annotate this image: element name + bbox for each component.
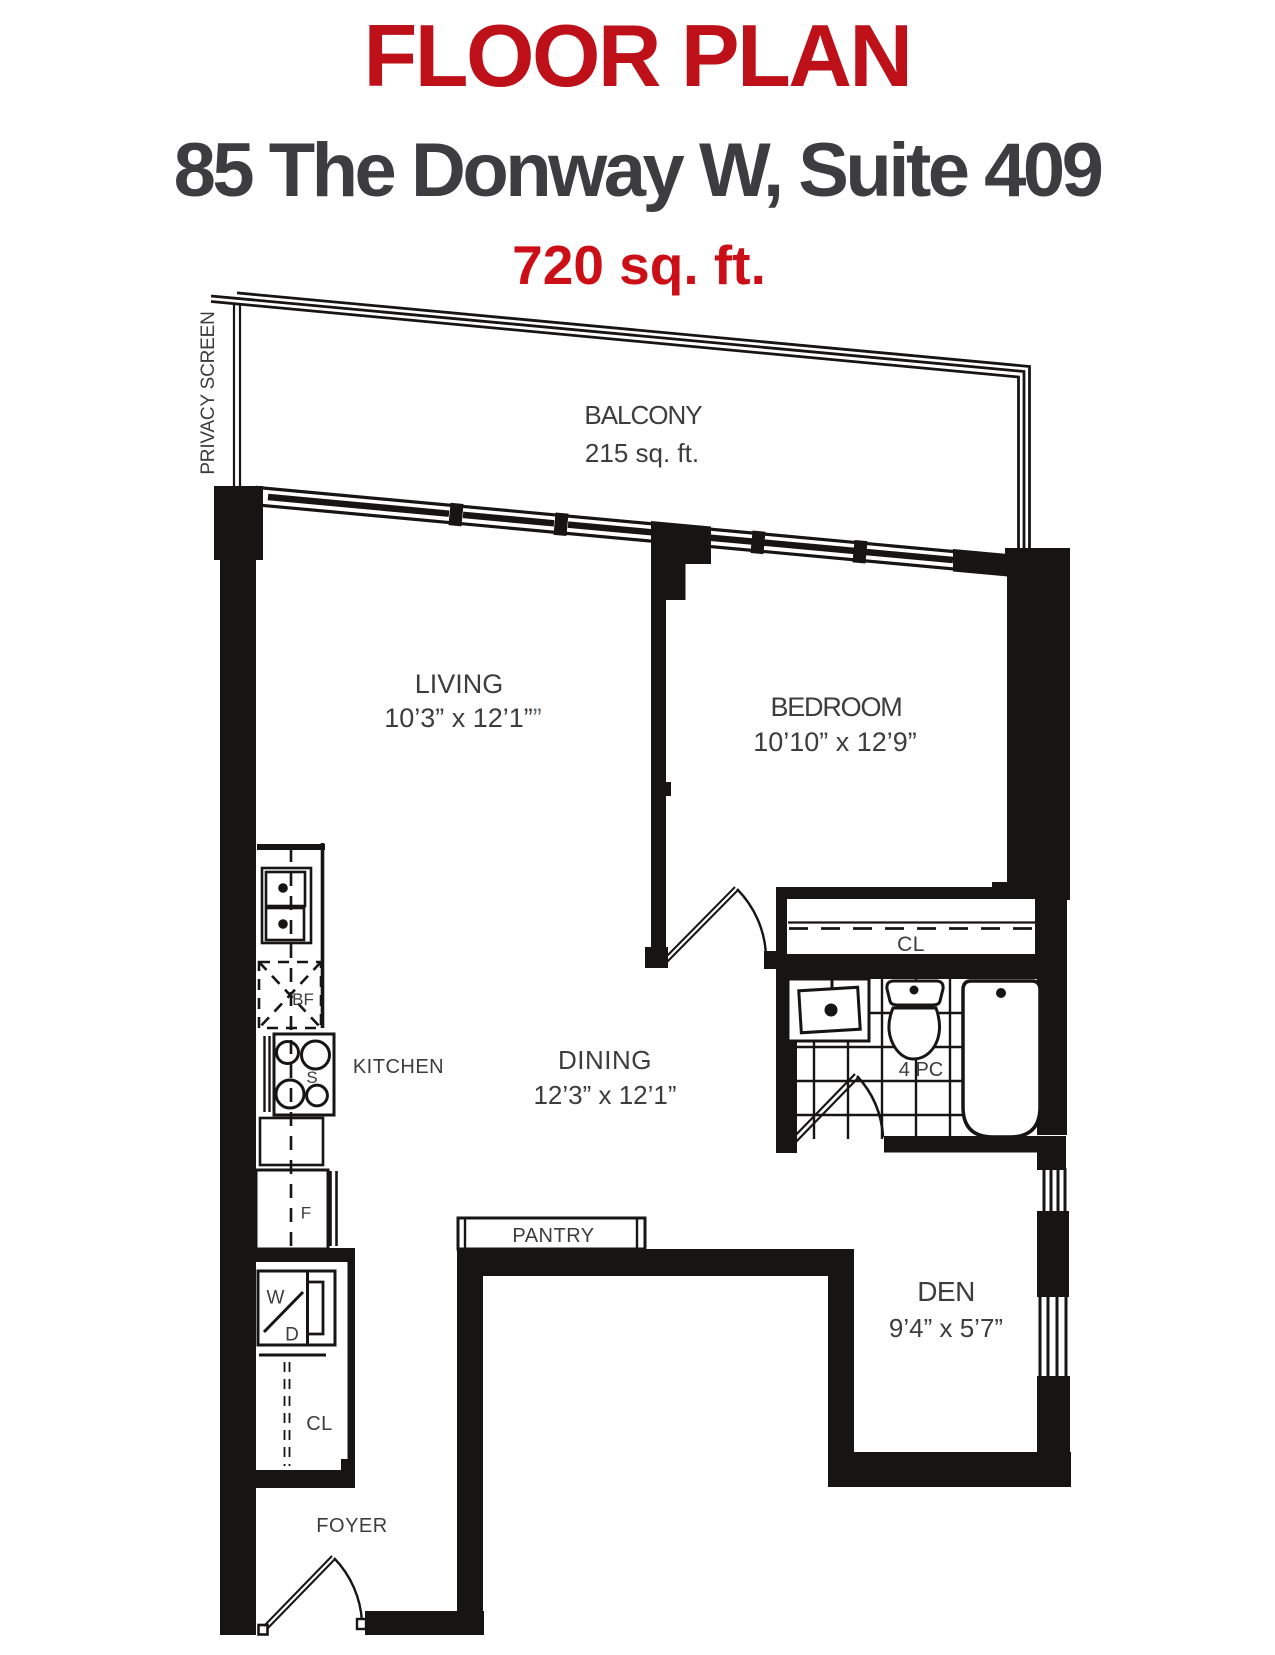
svg-text:LIVING: LIVING <box>415 669 504 699</box>
svg-text:FOYER: FOYER <box>316 1515 387 1537</box>
svg-text:BALCONY: BALCONY <box>584 400 702 430</box>
svg-text:W: W <box>267 1288 285 1309</box>
svg-text:BEDROOM: BEDROOM <box>770 692 901 722</box>
svg-text:D: D <box>285 1325 299 1346</box>
svg-text:F: F <box>301 1204 311 1223</box>
svg-text:CL: CL <box>306 1413 333 1435</box>
svg-text:720 sq. ft.: 720 sq. ft. <box>512 234 766 296</box>
svg-text:BF: BF <box>292 990 314 1009</box>
svg-text:215 sq. ft.: 215 sq. ft. <box>585 438 699 468</box>
svg-text:10’3” x 12’1””: 10’3” x 12’1”” <box>384 703 542 733</box>
svg-text:10’10” x 12’9”: 10’10” x 12’9” <box>753 727 917 757</box>
svg-text:KITCHEN: KITCHEN <box>353 1056 444 1078</box>
svg-text:9’4” x 5’7”: 9’4” x 5’7” <box>889 1313 1003 1343</box>
svg-text:CL: CL <box>897 933 925 956</box>
svg-text:PANTRY: PANTRY <box>512 1225 594 1247</box>
svg-text:85 The Donway W, Suite 409: 85 The Donway W, Suite 409 <box>174 128 1102 213</box>
svg-text:4 PC: 4 PC <box>899 1059 943 1081</box>
svg-text:S: S <box>306 1068 317 1087</box>
svg-text:DEN: DEN <box>917 1276 975 1307</box>
svg-text:FLOOR PLAN: FLOOR PLAN <box>364 6 911 105</box>
svg-text:PRIVACY SCREEN: PRIVACY SCREEN <box>198 311 219 474</box>
svg-text:DINING: DINING <box>558 1045 652 1075</box>
svg-text:12’3” x 12’1”: 12’3” x 12’1” <box>533 1080 676 1110</box>
